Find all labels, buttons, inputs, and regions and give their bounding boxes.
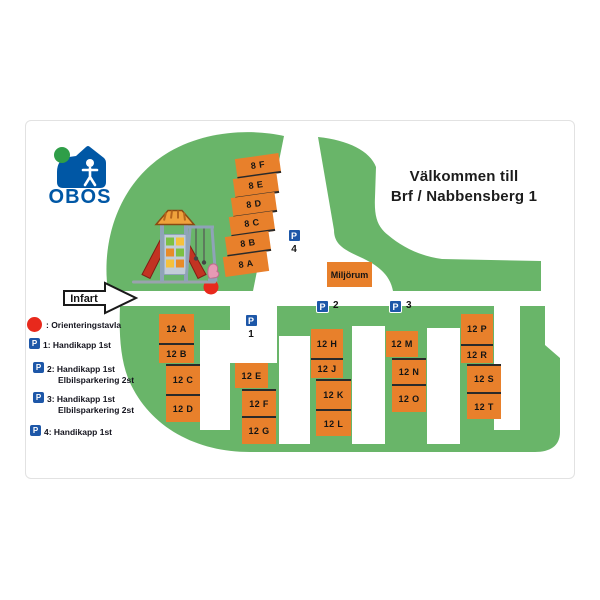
- building-12d: 12 D: [166, 394, 200, 422]
- building-12g: 12 G: [242, 416, 276, 444]
- legend-item-3-line2: Elbilsparkering 2st: [58, 405, 134, 415]
- building-12e: 12 E: [235, 363, 268, 388]
- obos-logo: [45, 142, 115, 190]
- building-stack-12fg: 12 F 12 G: [242, 389, 276, 444]
- parking-icon: P: [245, 314, 258, 327]
- parking-sign-4: P 4: [283, 229, 305, 255]
- parking-icon: P: [316, 300, 329, 313]
- obos-logo-text: OBOS: [40, 186, 120, 209]
- legend-item-2-line2: Elbilsparkering 2st: [58, 375, 134, 385]
- building-12m: 12 M: [386, 331, 418, 357]
- building-12t: 12 T: [467, 392, 501, 419]
- building-12o: 12 O: [392, 384, 426, 412]
- parking-number: 1: [248, 329, 254, 340]
- parking-sign-1: P 1: [240, 314, 262, 340]
- legend-parking-icon-1: P: [29, 338, 40, 349]
- building-12r: 12 R: [461, 344, 493, 363]
- parking-number: 3: [406, 300, 412, 311]
- parking-number: 4: [291, 244, 297, 255]
- building-12l: 12 L: [316, 409, 351, 436]
- building-stack-12m: 12 M: [386, 331, 418, 357]
- miljorum-box: Miljörum: [327, 262, 372, 287]
- legend-orientation-dot: [27, 317, 42, 332]
- legend-item-1: 1: Handikapp 1st: [43, 340, 111, 350]
- building-stack-12pr: 12 P 12 R: [461, 314, 493, 363]
- legend-board-label: : Orienteringstavla: [46, 320, 121, 330]
- building-12p: 12 P: [461, 314, 493, 344]
- building-12f: 12 F: [242, 389, 276, 416]
- parking-icon: P: [288, 229, 301, 242]
- building-12c: 12 C: [166, 364, 200, 394]
- building-12b: 12 B: [159, 343, 194, 363]
- legend-item-2: 2: Handikapp 1st: [47, 364, 115, 374]
- building-stack-12no: 12 N 12 O: [392, 358, 426, 412]
- building-stack-12st: 12 S 12 T: [467, 364, 501, 419]
- legend-parking-icon-4: P: [30, 425, 41, 436]
- building-stack-12cd: 12 C 12 D: [166, 364, 200, 422]
- building-12n: 12 N: [392, 358, 426, 384]
- parking-sign-2: P 2: [316, 300, 339, 313]
- building-stack-12ab: 12 A 12 B: [159, 314, 194, 363]
- welcome-line1: Välkommen till: [352, 167, 576, 187]
- building-stack-12e: 12 E: [235, 363, 268, 388]
- building-12k: 12 K: [316, 379, 351, 409]
- building-stack-12hj: 12 H 12 J: [311, 329, 343, 378]
- welcome-line2: Brf / Nabbensberg 1: [352, 187, 576, 207]
- legend-item-4: 4: Handikapp 1st: [44, 427, 112, 437]
- building-stack-12kl: 12 K 12 L: [316, 379, 351, 436]
- building-12s: 12 S: [467, 364, 501, 392]
- parking-sign-3: P 3: [389, 300, 412, 313]
- parking-icon: P: [389, 300, 402, 313]
- building-12j: 12 J: [311, 358, 343, 378]
- welcome-title: Välkommen till Brf / Nabbensberg 1: [352, 167, 576, 207]
- playground-illustration: [128, 204, 223, 290]
- map-terrain: Infart: [0, 0, 600, 600]
- orientation-board: Infart OBOS Välkommen till Brf / Nabbens…: [0, 0, 600, 600]
- parking-number: 2: [333, 300, 339, 311]
- legend-parking-icon-3: P: [33, 392, 44, 403]
- legend-item-3: 3: Handikapp 1st: [47, 394, 115, 404]
- legend-parking-icon-2: P: [33, 362, 44, 373]
- infart-label: Infart: [70, 293, 98, 305]
- building-12h: 12 H: [311, 329, 343, 358]
- building-12a: 12 A: [159, 314, 194, 343]
